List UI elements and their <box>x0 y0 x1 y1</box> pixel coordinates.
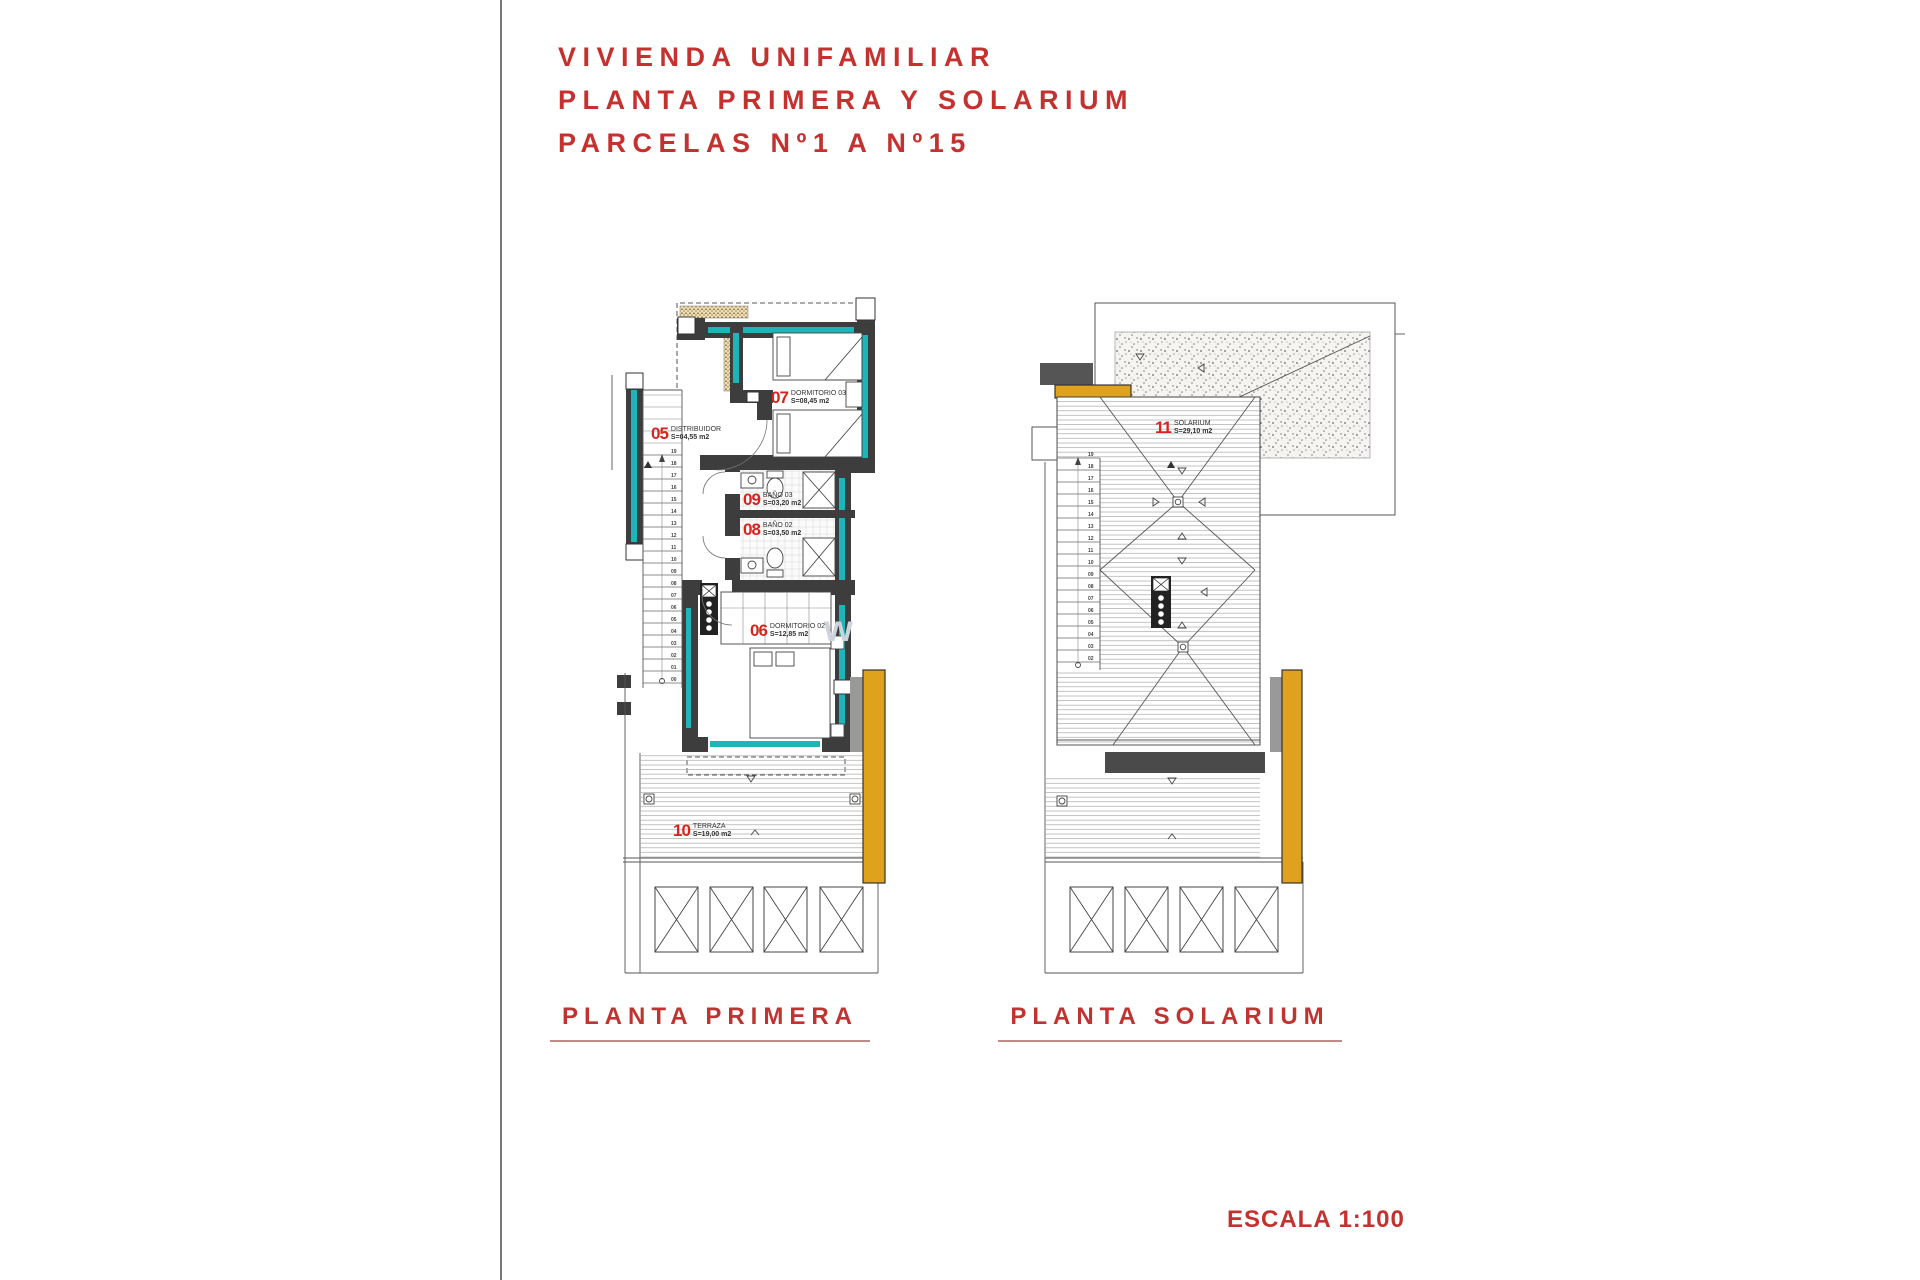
svg-text:04: 04 <box>671 629 677 635</box>
party-wall-cap <box>1040 363 1093 385</box>
svg-text:11: 11 <box>671 545 677 551</box>
svg-text:05: 05 <box>1088 620 1094 626</box>
svg-text:16: 16 <box>671 485 677 491</box>
room-label-bano-03: 09 BAÑO 03S=03,20 m2 <box>743 492 801 508</box>
svg-text:06: 06 <box>671 605 677 611</box>
drawing-title: VIVIENDA UNIFAMILIAR PLANTA PRIMERA Y SO… <box>558 36 1134 165</box>
title-line-3: PARCELAS Nº1 A Nº15 <box>558 122 1134 165</box>
svg-text:06: 06 <box>1088 608 1094 614</box>
room-label-bano-02: 08 BAÑO 02S=03,50 m2 <box>743 522 801 538</box>
solarium-deck <box>1057 397 1260 745</box>
room-label-solarium: 11 SOLARIUMS=29,10 m2 <box>1155 420 1212 436</box>
pergola-bar <box>863 670 885 883</box>
stair-marker <box>644 461 652 468</box>
deck-edge <box>1057 740 1265 773</box>
slab-edge <box>850 677 864 752</box>
vent-unit <box>1151 576 1171 628</box>
room-label-dormitorio-02: 06 DORMITORIO 02S=12,85 m2 <box>750 623 825 639</box>
svg-text:12: 12 <box>1088 536 1094 542</box>
svg-text:07: 07 <box>1088 596 1094 602</box>
svg-text:00: 00 <box>671 677 677 683</box>
terrace-deck <box>1045 777 1303 862</box>
svg-text:14: 14 <box>1088 512 1094 518</box>
pergola-bar <box>1282 670 1302 883</box>
svg-text:05: 05 <box>671 617 677 623</box>
svg-text:13: 13 <box>1088 524 1094 530</box>
svg-text:10: 10 <box>671 557 677 563</box>
svg-text:10: 10 <box>1088 560 1094 566</box>
svg-text:09: 09 <box>1088 572 1094 578</box>
floor-plan-solarium: 191817161514131211100908070605040302 <box>935 240 1405 1000</box>
title-line-1: VIVIENDA UNIFAMILIAR <box>558 36 1134 79</box>
svg-text:12: 12 <box>671 533 677 539</box>
svg-text:08: 08 <box>671 581 677 587</box>
nightstand <box>846 382 862 407</box>
drawing-sheet: VIVIENDA UNIFAMILIAR PLANTA PRIMERA Y SO… <box>0 0 1920 1280</box>
cross-squares <box>1070 887 1278 952</box>
svg-text:15: 15 <box>671 497 677 503</box>
floor-plan-solarium-drawing: 191817161514131211100908070605040302 <box>935 240 1405 1000</box>
svg-text:08: 08 <box>1088 584 1094 590</box>
sheet-border-line <box>500 0 502 1280</box>
bed-single-1 <box>773 333 862 380</box>
svg-text:14: 14 <box>671 509 677 515</box>
caption-planta-primera: PLANTA PRIMERA <box>505 1003 915 1042</box>
svg-text:01: 01 <box>671 665 677 671</box>
scale-label: ESCALA 1:100 <box>1227 1206 1405 1234</box>
room-label-dormitorio-03: 07 DORMITORIO 03S=08,45 m2 <box>771 390 846 406</box>
svg-text:17: 17 <box>671 473 677 479</box>
svg-text:07: 07 <box>671 593 677 599</box>
floor-plan-primera: 1918171615141312111009080706050403020100 <box>505 240 915 1000</box>
svg-text:03: 03 <box>671 641 677 647</box>
installation-shaft <box>700 583 718 635</box>
svg-text:19: 19 <box>1088 452 1094 458</box>
svg-text:19: 19 <box>671 449 677 455</box>
svg-text:04: 04 <box>1088 632 1094 638</box>
bed-double <box>750 636 844 738</box>
svg-text:13: 13 <box>671 521 677 527</box>
pergola-bar-top <box>1055 385 1131 398</box>
room-label-distribuidor: 05 DISTRIBUIDORS=04,55 m2 <box>651 426 721 442</box>
svg-text:03: 03 <box>1088 644 1094 650</box>
stair-treads: 1918171615141312111009080706050403020100 <box>643 449 682 683</box>
svg-text:02: 02 <box>671 653 677 659</box>
slab-edge <box>1270 677 1282 752</box>
svg-text:18: 18 <box>671 461 677 467</box>
svg-text:17: 17 <box>1088 476 1094 482</box>
terrace-deck <box>623 753 878 862</box>
cross-squares <box>655 887 863 952</box>
bed-single-2 <box>773 410 862 457</box>
svg-text:16: 16 <box>1088 488 1094 494</box>
caption-planta-solarium: PLANTA SOLARIUM <box>935 1003 1405 1042</box>
floor-plan-primera-drawing: 1918171615141312111009080706050403020100 <box>505 240 915 1000</box>
watermark: w <box>824 610 853 647</box>
svg-text:11: 11 <box>1088 548 1094 554</box>
svg-text:02: 02 <box>1088 656 1094 662</box>
svg-text:18: 18 <box>1088 464 1094 470</box>
room-label-terraza: 10 TERRAZAS=19,00 m2 <box>673 823 731 839</box>
svg-text:15: 15 <box>1088 500 1094 506</box>
svg-text:09: 09 <box>671 569 677 575</box>
title-line-2: PLANTA PRIMERA Y SOLARIUM <box>558 79 1134 122</box>
